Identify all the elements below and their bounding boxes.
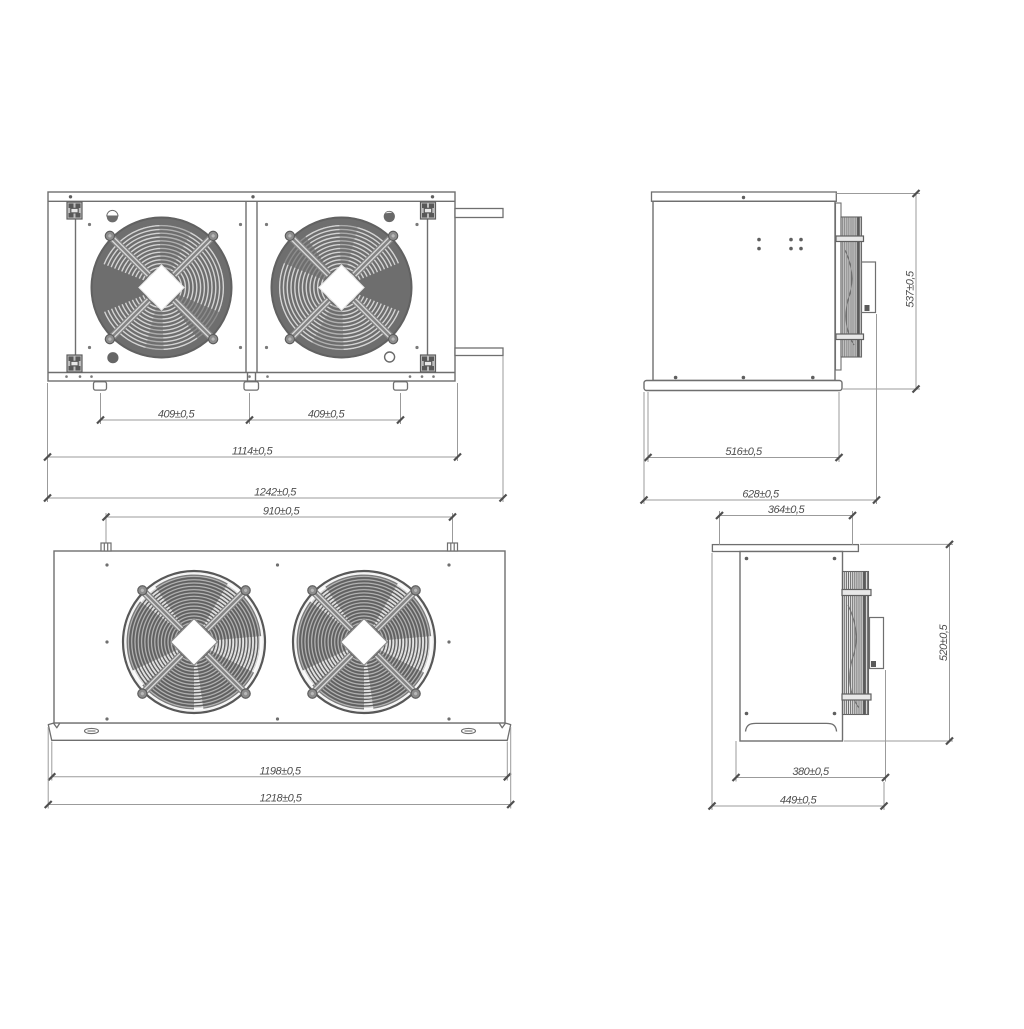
svg-text:409±0,5: 409±0,5 [158, 409, 196, 421]
svg-text:1218±0,5: 1218±0,5 [260, 793, 303, 805]
svg-text:1198±0,5: 1198±0,5 [260, 765, 302, 777]
svg-text:516±0,5: 516±0,5 [725, 446, 763, 458]
svg-text:520±0,5: 520±0,5 [938, 624, 950, 662]
svg-text:409±0,5: 409±0,5 [308, 409, 346, 421]
svg-text:364±0,5: 364±0,5 [768, 504, 806, 516]
svg-text:1242±0,5: 1242±0,5 [254, 487, 297, 499]
svg-text:628±0,5: 628±0,5 [742, 489, 780, 501]
svg-text:1114±0,5: 1114±0,5 [232, 446, 274, 458]
svg-text:449±0,5: 449±0,5 [780, 795, 818, 807]
svg-text:537±0,5: 537±0,5 [905, 270, 917, 308]
svg-text:910±0,5: 910±0,5 [263, 506, 301, 518]
svg-text:380±0,5: 380±0,5 [792, 766, 830, 778]
